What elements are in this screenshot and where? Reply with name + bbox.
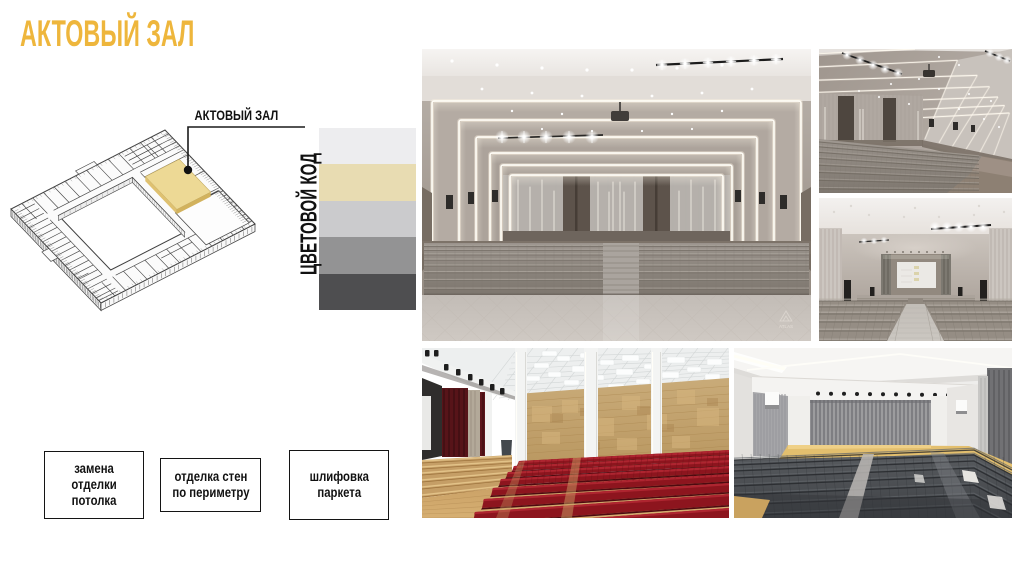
svg-text:ATLAS: ATLAS (779, 324, 793, 329)
